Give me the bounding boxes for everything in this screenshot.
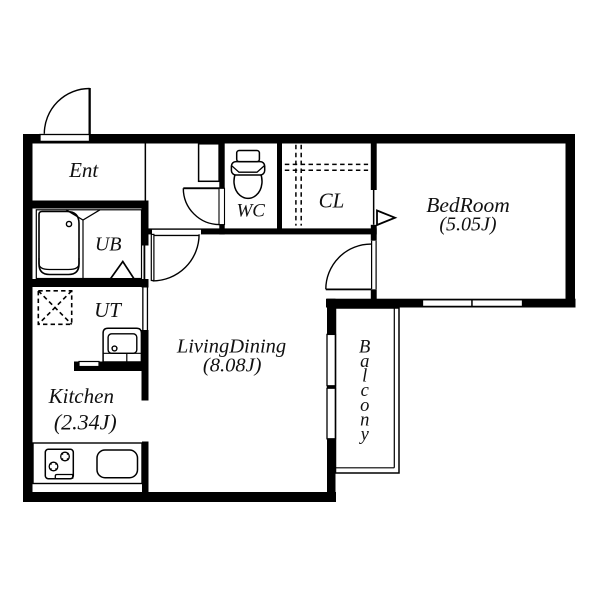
svg-text:UT: UT (94, 298, 122, 322)
svg-text:UB: UB (95, 234, 122, 256)
svg-text:WC: WC (236, 201, 265, 222)
svg-text:Ent: Ent (68, 158, 99, 182)
svg-text:(8.08J): (8.08J) (203, 355, 262, 377)
svg-text:y: y (359, 425, 370, 445)
svg-text:(2.34J): (2.34J) (54, 410, 117, 435)
svg-text:Kitchen: Kitchen (48, 384, 114, 408)
svg-text:CL: CL (319, 189, 345, 213)
svg-text:(5.05J): (5.05J) (439, 214, 497, 236)
